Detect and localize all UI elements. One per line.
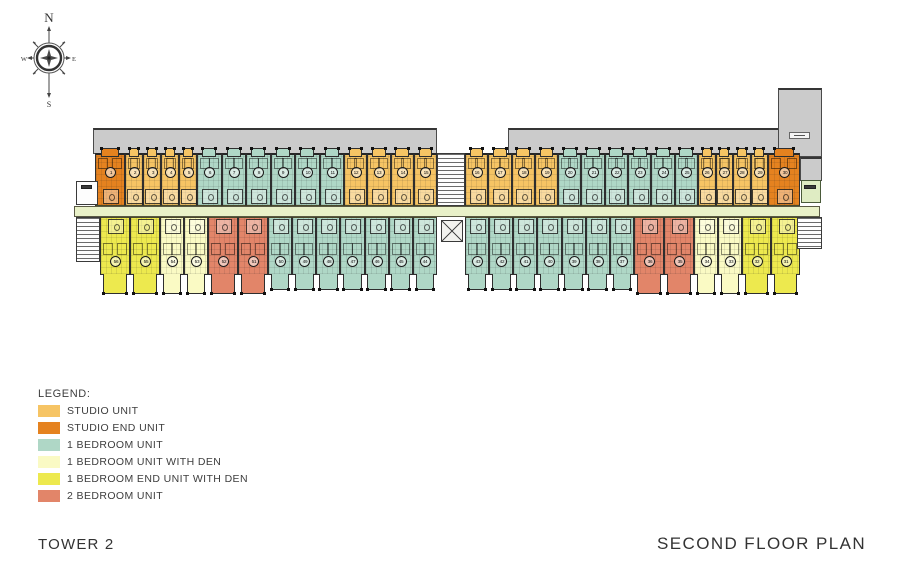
legend-swatch-twoBed: [38, 490, 60, 502]
unit-5: 5: [179, 153, 197, 206]
unit-49: 49: [292, 217, 316, 275]
furniture-mark: [745, 243, 755, 255]
unit-number: 40: [544, 256, 555, 267]
balcony: [667, 274, 691, 294]
unit-8: 8: [246, 153, 271, 206]
bathroom-pod: [656, 189, 672, 204]
furniture-mark: [621, 243, 631, 255]
bathroom-pod: [189, 219, 205, 234]
balcony: [211, 274, 235, 294]
unit-number: 1: [105, 167, 116, 178]
roof-column-label: [789, 132, 810, 139]
balcony: [609, 148, 623, 157]
unit-13: 13: [367, 153, 390, 206]
unit-24: 24: [651, 153, 674, 206]
unit-51: 51: [238, 217, 268, 275]
bathroom-pod: [216, 219, 232, 234]
unit-number: 18: [518, 167, 529, 178]
balcony: [492, 274, 511, 290]
furniture-mark: [376, 243, 386, 255]
unit-33: 33: [718, 217, 742, 275]
balcony: [367, 274, 386, 290]
bathroom-pod: [516, 189, 532, 204]
balcony: [588, 274, 607, 290]
balcony: [133, 274, 157, 294]
unit-25: 25: [675, 153, 698, 206]
roof-stub-right: [800, 157, 822, 181]
unit-number: 51: [248, 256, 259, 267]
bathroom-pod: [542, 219, 558, 234]
furniture-mark: [787, 158, 797, 169]
bathroom-pod: [300, 189, 316, 204]
unit-number: 11: [327, 167, 338, 178]
balcony: [774, 274, 797, 294]
unit-27: 27: [716, 153, 734, 206]
balcony: [516, 148, 530, 157]
unit-number: 7: [229, 167, 240, 178]
unit-number: 16: [472, 167, 483, 178]
balcony: [416, 274, 435, 290]
unit-10: 10: [295, 153, 320, 206]
balcony: [745, 274, 768, 294]
unit-number: 4: [165, 167, 176, 178]
balcony: [468, 274, 487, 290]
unit-number: 31: [781, 256, 792, 267]
unit-26: 26: [698, 153, 716, 206]
bathroom-pod: [470, 189, 486, 204]
legend-item: STUDIO END UNIT: [38, 420, 248, 436]
unit-number: 9: [278, 167, 289, 178]
bathroom-pod: [251, 189, 267, 204]
unit-30: 30: [768, 153, 800, 206]
bathroom-pod: [615, 219, 631, 234]
bathroom-pod: [699, 219, 715, 234]
balcony: [372, 148, 386, 157]
furniture-mark: [211, 243, 221, 255]
center-stair: [437, 153, 465, 206]
right-stair: [797, 217, 822, 249]
unit-38: 38: [586, 217, 610, 275]
center-elevator: [441, 220, 463, 242]
balcony: [300, 148, 314, 157]
unit-number: 21: [588, 167, 599, 178]
bathroom-pod: [227, 189, 243, 204]
unit-number: 12: [351, 167, 362, 178]
bathroom-pod: [202, 189, 218, 204]
furniture-mark: [573, 243, 583, 255]
unit-number: 26: [702, 167, 713, 178]
bathroom-pod: [777, 189, 793, 204]
unit-46: 46: [365, 217, 389, 275]
bathroom-pod: [276, 189, 292, 204]
central-corridor: [74, 206, 820, 217]
balcony: [721, 274, 740, 294]
bathroom-pod: [273, 219, 289, 234]
unit-9: 9: [271, 153, 296, 206]
furniture-mark: [597, 243, 607, 255]
bathroom-pod: [679, 189, 695, 204]
bathroom-pod: [494, 219, 510, 234]
unit-40: 40: [537, 217, 561, 275]
furniture-mark: [352, 243, 362, 255]
bathroom-pod: [394, 219, 410, 234]
balcony: [774, 148, 793, 157]
bathroom-pod: [246, 219, 262, 234]
balcony: [586, 148, 600, 157]
unit-number: 14: [397, 167, 408, 178]
bathroom-pod: [717, 189, 733, 204]
unit-12: 12: [344, 153, 367, 206]
legend-swatch-oneBedEndDen: [38, 473, 60, 485]
furniture-mark: [147, 243, 157, 255]
unit-number: 15: [420, 167, 431, 178]
balcony: [656, 148, 670, 157]
right-room-label: [804, 185, 816, 189]
balcony: [271, 274, 290, 290]
balcony: [251, 148, 265, 157]
bathroom-pod: [470, 219, 486, 234]
unit-52: 52: [208, 217, 238, 275]
bathroom-pod: [563, 189, 579, 204]
unit-number: 23: [635, 167, 646, 178]
balcony: [516, 274, 535, 290]
unit-number: 39: [569, 256, 580, 267]
bathroom-pod: [418, 219, 434, 234]
bathroom-pod: [345, 219, 361, 234]
legend-label: 1 BEDROOM END UNIT WITH DEN: [67, 473, 248, 485]
unit-7: 7: [222, 153, 247, 206]
unit-36: 36: [634, 217, 664, 275]
bathroom-pod: [297, 219, 313, 234]
unit-1: 1: [95, 153, 125, 206]
balcony: [737, 148, 747, 157]
unit-18: 18: [512, 153, 535, 206]
balcony: [343, 274, 362, 290]
unit-number: 5: [183, 167, 194, 178]
furniture-mark: [667, 243, 677, 255]
balcony: [241, 274, 265, 294]
bathroom-pod: [586, 189, 602, 204]
left-stair: [76, 217, 100, 262]
unit-number: 42: [496, 256, 507, 267]
furniture-mark: [524, 243, 534, 255]
balcony: [540, 274, 559, 290]
unit-number: 25: [681, 167, 692, 178]
balcony: [754, 148, 764, 157]
legend-label: 1 BEDROOM UNIT: [67, 439, 163, 451]
unit-11: 11: [320, 153, 345, 206]
bathroom-pod: [752, 189, 768, 204]
bathroom-pod: [325, 189, 341, 204]
bathroom-pod: [103, 189, 119, 204]
balcony: [349, 148, 363, 157]
unit-2: 2: [125, 153, 143, 206]
balcony: [129, 148, 139, 157]
unit-39: 39: [562, 217, 586, 275]
legend-swatch-studio: [38, 405, 60, 417]
balcony: [295, 274, 314, 290]
unit-number: 56: [110, 256, 121, 267]
bathroom-pod: [779, 219, 795, 234]
unit-number: 27: [719, 167, 730, 178]
furniture-mark: [637, 243, 647, 255]
right-utility-room: [801, 180, 821, 203]
unit-number: 54: [167, 256, 178, 267]
unit-number: 45: [396, 256, 407, 267]
balcony: [419, 148, 433, 157]
unit-number: 55: [140, 256, 151, 267]
bathroom-pod: [633, 189, 649, 204]
unit-45: 45: [389, 217, 413, 275]
unit-number: 20: [565, 167, 576, 178]
unit-number: 44: [420, 256, 431, 267]
balcony: [391, 274, 410, 290]
legend-label: 1 BEDROOM UNIT WITH DEN: [67, 456, 221, 468]
balcony: [719, 148, 729, 157]
unit-number: 17: [495, 167, 506, 178]
unit-3: 3: [143, 153, 161, 206]
furniture-mark: [500, 243, 510, 255]
unit-47: 47: [340, 217, 364, 275]
unit-number: 8: [253, 167, 264, 178]
bathroom-pod: [321, 219, 337, 234]
legend: LEGEND: STUDIO UNITSTUDIO END UNIT1 BEDR…: [38, 388, 248, 504]
unit-number: 52: [218, 256, 229, 267]
balcony: [202, 148, 216, 157]
unit-number: 46: [372, 256, 383, 267]
unit-number: 48: [323, 256, 334, 267]
unit-number: 10: [302, 167, 313, 178]
plan-title: SECOND FLOOR PLAN: [657, 534, 866, 554]
bathroom-pod: [493, 189, 509, 204]
unit-number: 53: [191, 256, 202, 267]
unit-number: 37: [617, 256, 628, 267]
balcony: [633, 148, 647, 157]
furniture-mark: [476, 243, 486, 255]
bathroom-pod: [181, 189, 197, 204]
furniture-mark: [424, 243, 434, 255]
legend-swatch-oneBed: [38, 439, 60, 451]
bathroom-pod: [567, 219, 583, 234]
bathroom-pod: [700, 189, 716, 204]
unit-21: 21: [581, 153, 604, 206]
bathroom-pod: [349, 189, 365, 204]
unit-14: 14: [391, 153, 414, 206]
unit-23: 23: [628, 153, 651, 206]
furniture-mark: [103, 243, 113, 255]
balcony: [187, 274, 206, 294]
legend-item: 1 BEDROOM END UNIT WITH DEN: [38, 471, 248, 487]
unit-31: 31: [771, 217, 800, 275]
bathroom-pod: [735, 189, 751, 204]
unit-35: 35: [664, 217, 694, 275]
balcony: [563, 148, 577, 157]
balcony: [613, 274, 632, 290]
unit-number: 47: [347, 256, 358, 267]
unit-number: 38: [593, 256, 604, 267]
unit-number: 33: [725, 256, 736, 267]
furniture-mark: [758, 243, 768, 255]
unit-number: 41: [520, 256, 531, 267]
furniture-mark: [705, 243, 715, 255]
legend-label: STUDIO UNIT: [67, 405, 138, 417]
bathroom-pod: [591, 219, 607, 234]
furniture-mark: [771, 158, 781, 169]
bathroom-pod: [145, 189, 161, 204]
legend-item: STUDIO UNIT: [38, 403, 248, 419]
balcony: [183, 148, 193, 157]
unit-29: 29: [751, 153, 769, 206]
unit-32: 32: [742, 217, 771, 275]
balcony: [564, 274, 583, 290]
balcony: [163, 274, 182, 294]
unit-44: 44: [413, 217, 437, 275]
left-room-label: [81, 185, 92, 189]
unit-number: 19: [541, 167, 552, 178]
bathroom-pod: [723, 219, 739, 234]
legend-title: LEGEND:: [38, 388, 248, 400]
furniture-mark: [279, 243, 289, 255]
legend-swatch-studioEnd: [38, 422, 60, 434]
balcony: [325, 148, 339, 157]
furniture-mark: [195, 243, 205, 255]
furniture-mark: [651, 243, 661, 255]
unit-number: 24: [658, 167, 669, 178]
balcony: [319, 274, 338, 290]
legend-items: STUDIO UNITSTUDIO END UNIT1 BEDROOM UNIT…: [38, 403, 248, 504]
unit-17: 17: [488, 153, 511, 206]
unit-56: 56: [100, 217, 130, 275]
furniture-mark: [400, 243, 410, 255]
unit-number: 50: [275, 256, 286, 267]
unit-number: 2: [129, 167, 140, 178]
unit-number: 3: [147, 167, 158, 178]
unit-41: 41: [513, 217, 537, 275]
legend-item: 1 BEDROOM UNIT WITH DEN: [38, 454, 248, 470]
furniture-mark: [241, 243, 251, 255]
legend-label: STUDIO END UNIT: [67, 422, 165, 434]
bathroom-pod: [518, 219, 534, 234]
furniture-mark: [255, 243, 265, 255]
bathroom-pod: [370, 219, 386, 234]
unit-16: 16: [465, 153, 488, 206]
bathroom-pod: [108, 219, 124, 234]
balcony: [697, 274, 716, 294]
furniture-mark: [774, 243, 784, 255]
bathroom-pod: [395, 189, 411, 204]
balcony: [679, 148, 693, 157]
legend-item: 1 BEDROOM UNIT: [38, 437, 248, 453]
bathroom-pod: [750, 219, 766, 234]
bathroom-pod: [609, 189, 625, 204]
legend-swatch-oneBedDen: [38, 456, 60, 468]
legend-item: 2 BEDROOM UNIT: [38, 488, 248, 504]
bathroom-pod: [372, 189, 388, 204]
furniture-mark: [225, 243, 235, 255]
unit-6: 6: [197, 153, 222, 206]
bathroom-pod: [127, 189, 143, 204]
unit-number: 49: [299, 256, 310, 267]
unit-number: 22: [611, 167, 622, 178]
balcony: [165, 148, 175, 157]
unit-19: 19: [535, 153, 558, 206]
furniture-mark: [171, 243, 181, 255]
balcony: [637, 274, 661, 294]
unit-42: 42: [489, 217, 513, 275]
unit-48: 48: [316, 217, 340, 275]
unit-number: 13: [374, 167, 385, 178]
unit-number: 35: [674, 256, 685, 267]
unit-number: 28: [737, 167, 748, 178]
furniture-mark: [729, 243, 739, 255]
legend-label: 2 BEDROOM UNIT: [67, 490, 163, 502]
unit-number: 29: [754, 167, 765, 178]
unit-number: 32: [752, 256, 763, 267]
balcony: [227, 148, 241, 157]
balcony: [103, 274, 127, 294]
balcony: [395, 148, 409, 157]
unit-4: 4: [161, 153, 179, 206]
unit-28: 28: [733, 153, 751, 206]
furniture-mark: [549, 243, 559, 255]
furniture-mark: [681, 243, 691, 255]
unit-22: 22: [605, 153, 628, 206]
unit-number: 34: [701, 256, 712, 267]
balcony: [276, 148, 290, 157]
bathroom-pod: [642, 219, 658, 234]
roof-column-right: [778, 88, 822, 157]
balcony: [702, 148, 712, 157]
bathroom-pod: [138, 219, 154, 234]
bathroom-pod: [163, 189, 179, 204]
unit-number: 30: [779, 167, 790, 178]
unit-number: 6: [204, 167, 215, 178]
unit-55: 55: [130, 217, 160, 275]
balcony: [493, 148, 507, 157]
unit-50: 50: [268, 217, 292, 275]
furniture-mark: [117, 243, 127, 255]
bathroom-pod: [539, 189, 555, 204]
furniture-mark: [133, 243, 143, 255]
balcony: [147, 148, 157, 157]
tower-title: TOWER 2: [38, 536, 114, 553]
bathroom-pod: [672, 219, 688, 234]
balcony: [101, 148, 119, 157]
unit-54: 54: [160, 217, 184, 275]
furniture-mark: [303, 243, 313, 255]
furniture-mark: [787, 243, 797, 255]
unit-20: 20: [558, 153, 581, 206]
unit-34: 34: [694, 217, 718, 275]
furniture-mark: [327, 243, 337, 255]
unit-number: 36: [644, 256, 655, 267]
bathroom-pod: [418, 189, 434, 204]
balcony: [540, 148, 554, 157]
unit-15: 15: [414, 153, 437, 206]
bathroom-pod: [165, 219, 181, 234]
unit-53: 53: [184, 217, 208, 275]
balcony: [470, 148, 484, 157]
unit-43: 43: [465, 217, 489, 275]
unit-37: 37: [610, 217, 634, 275]
unit-number: 43: [472, 256, 483, 267]
